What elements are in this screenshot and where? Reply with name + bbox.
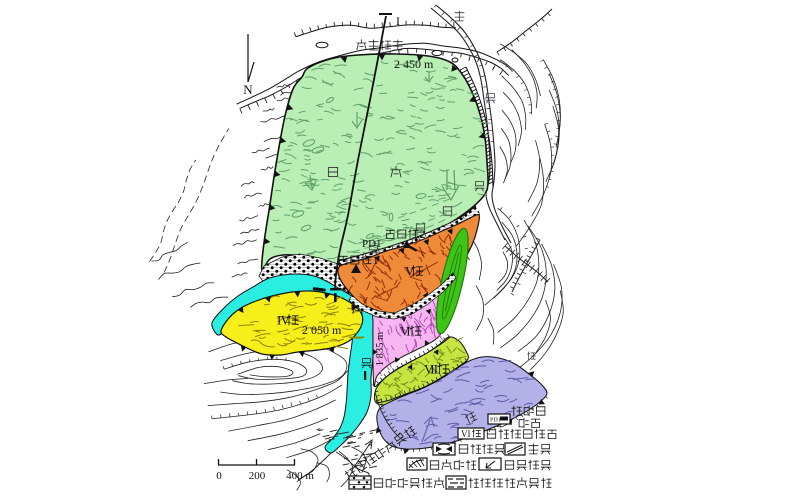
svg-text:200: 200 — [249, 470, 266, 482]
svg-text:PD1: PD1 — [362, 238, 382, 250]
svg-text:0: 0 — [216, 470, 222, 482]
svg-text:I: I — [396, 14, 400, 28]
svg-text:I: I — [434, 361, 438, 376]
svg-text:2 450 m: 2 450 m — [394, 57, 434, 71]
svg-text:1 835 m: 1 835 m — [375, 332, 386, 366]
svg-text:1: 1 — [373, 255, 379, 267]
svg-text:400 m: 400 m — [286, 470, 314, 482]
svg-text:I: I — [406, 323, 410, 338]
svg-text:N: N — [243, 82, 253, 97]
svg-text:2: 2 — [420, 229, 426, 241]
svg-text:VI: VI — [461, 429, 471, 439]
svg-text:2 050 m: 2 050 m — [302, 323, 342, 337]
svg-text:PD1: PD1 — [490, 418, 501, 424]
